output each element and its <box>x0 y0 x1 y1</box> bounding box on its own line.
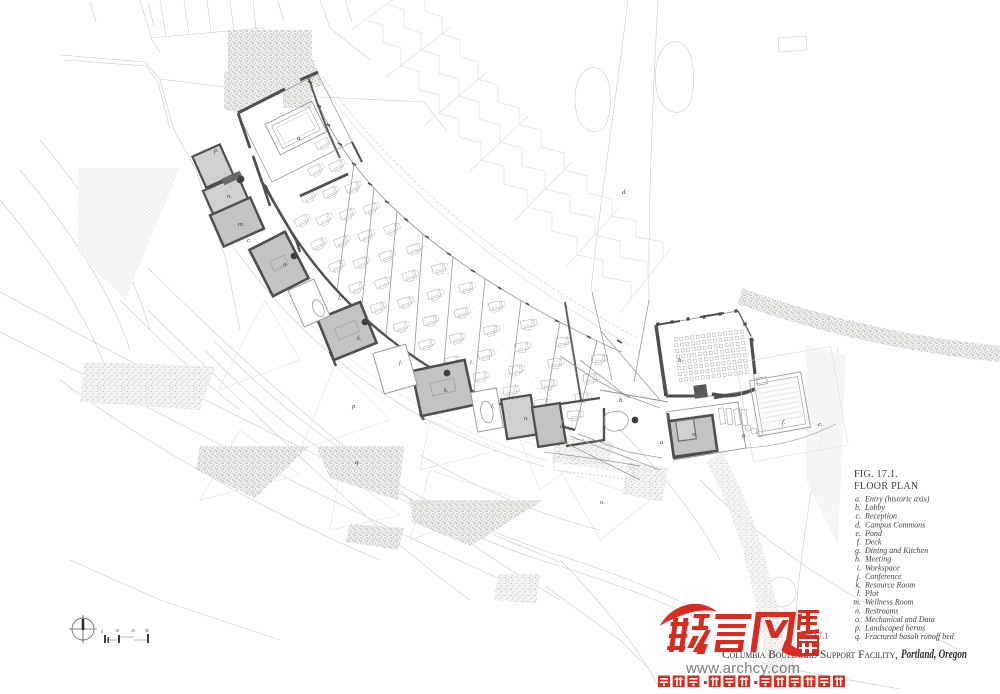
svg-text:q.: q. <box>355 459 360 466</box>
svg-text:p.: p. <box>351 403 357 410</box>
svg-text:o.: o. <box>600 499 605 506</box>
svg-text:g.: g. <box>742 432 747 439</box>
svg-text:k.: k. <box>444 387 449 394</box>
svg-text:o.: o. <box>283 261 288 268</box>
svg-text:0: 0 <box>101 629 103 634</box>
svg-text:m.: m. <box>238 221 245 228</box>
svg-text:Fractured basalt runoff bed: Fractured basalt runoff bed <box>864 632 955 641</box>
svg-text:i.: i. <box>470 359 474 366</box>
svg-text:www.archcy.com: www.archcy.com <box>685 660 800 677</box>
svg-text:25: 25 <box>131 628 135 633</box>
svg-text:k.: k. <box>357 335 362 342</box>
svg-text:a.: a. <box>660 439 665 446</box>
svg-text:FLOOR PLAN: FLOOR PLAN <box>854 481 918 492</box>
svg-text:Portland, Oregon: Portland, Oregon <box>901 647 967 661</box>
svg-text:l.: l. <box>491 403 495 410</box>
svg-text:m.: m. <box>560 423 567 430</box>
svg-text:10: 10 <box>115 628 119 633</box>
svg-text:q.: q. <box>855 632 861 641</box>
svg-text:j.: j. <box>398 359 403 366</box>
svg-text:n.: n. <box>524 415 529 422</box>
svg-text:o.: o. <box>692 431 697 438</box>
svg-text:d.: d. <box>622 189 627 196</box>
svg-text:FIG. 17.1.: FIG. 17.1. <box>854 469 898 480</box>
svg-text:l.: l. <box>338 295 342 302</box>
svg-text:f.: f. <box>782 419 786 426</box>
svg-text:e.: e. <box>818 421 823 428</box>
svg-text:b.: b. <box>619 397 624 404</box>
svg-text:h.: h. <box>678 357 683 364</box>
svg-text:n.: n. <box>227 193 232 200</box>
svg-text:c.: c. <box>247 237 252 244</box>
svg-text:50: 50 <box>145 628 149 633</box>
svg-text:a.: a. <box>297 135 302 142</box>
svg-text:p.: p. <box>213 147 219 154</box>
